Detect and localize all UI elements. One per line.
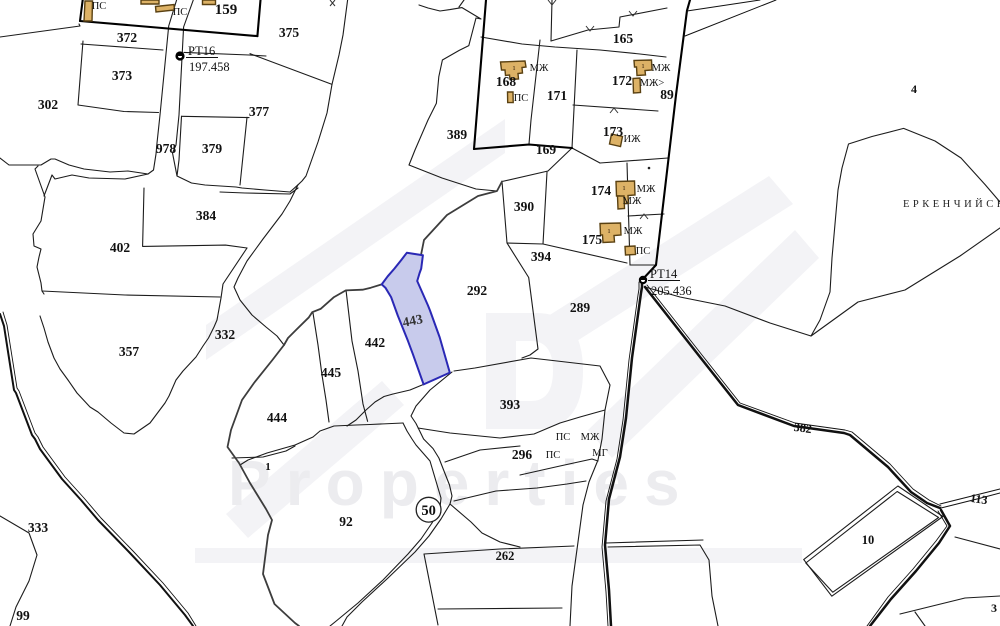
- svg-text:Properties: Properties: [228, 447, 695, 519]
- svg-text:333: 333: [28, 520, 49, 535]
- svg-text:ПС: ПС: [556, 432, 571, 443]
- svg-text:357: 357: [119, 344, 140, 359]
- svg-text:МГ: МГ: [592, 448, 607, 459]
- svg-text:165: 165: [613, 31, 634, 46]
- svg-text:99: 99: [16, 608, 30, 623]
- svg-text:373: 373: [112, 68, 133, 83]
- svg-text:РТ16: РТ16: [188, 44, 215, 58]
- svg-text:289: 289: [570, 300, 591, 315]
- svg-text:3: 3: [991, 601, 997, 615]
- svg-text:1: 1: [622, 185, 625, 192]
- svg-text:197.458: 197.458: [189, 60, 230, 74]
- svg-text:ПС: ПС: [636, 246, 651, 257]
- svg-text:МЖ>: МЖ>: [640, 78, 665, 89]
- svg-text:382: 382: [793, 420, 813, 436]
- svg-text:ПС: ПС: [546, 450, 561, 461]
- svg-text:372: 372: [117, 30, 138, 45]
- svg-text:332: 332: [215, 327, 236, 342]
- svg-text:168: 168: [496, 74, 517, 89]
- svg-text:МЖ: МЖ: [530, 63, 549, 74]
- svg-text:МЖ: МЖ: [623, 196, 642, 207]
- svg-text:ПС: ПС: [92, 1, 107, 12]
- svg-text:169: 169: [536, 142, 557, 157]
- svg-text:172: 172: [612, 73, 633, 88]
- svg-text:978: 978: [156, 141, 177, 156]
- svg-text:377: 377: [249, 104, 270, 119]
- svg-text:1: 1: [512, 65, 515, 72]
- svg-text:4: 4: [911, 82, 917, 96]
- svg-text:393: 393: [500, 397, 521, 412]
- svg-text:389: 389: [447, 127, 468, 142]
- svg-text:1: 1: [607, 228, 610, 235]
- svg-text:МЖ: МЖ: [637, 184, 656, 195]
- svg-text:296: 296: [512, 447, 533, 462]
- svg-text:262: 262: [496, 549, 515, 563]
- svg-text:92: 92: [339, 514, 353, 529]
- svg-text:402: 402: [110, 240, 131, 255]
- svg-text:174: 174: [591, 183, 612, 198]
- svg-text:ИЖ: ИЖ: [624, 134, 642, 145]
- svg-text:10: 10: [862, 533, 875, 547]
- svg-text:292: 292: [467, 283, 488, 298]
- svg-text:МЖ: МЖ: [624, 226, 643, 237]
- svg-text:384: 384: [196, 208, 217, 223]
- svg-text:375: 375: [279, 25, 300, 40]
- svg-text:113: 113: [969, 491, 988, 507]
- svg-text:445: 445: [321, 365, 342, 380]
- svg-text:ПС: ПС: [173, 7, 188, 18]
- svg-text:379: 379: [202, 141, 223, 156]
- svg-text:РТ14: РТ14: [650, 267, 678, 281]
- svg-text:МЖ: МЖ: [652, 63, 671, 74]
- svg-text:302: 302: [38, 97, 59, 112]
- svg-text:175: 175: [582, 232, 603, 247]
- svg-text:205.436: 205.436: [651, 284, 692, 298]
- svg-text:1: 1: [265, 461, 271, 473]
- svg-text:ПС: ПС: [514, 93, 529, 104]
- svg-text:394: 394: [531, 249, 552, 264]
- svg-text:444: 444: [267, 410, 288, 425]
- svg-text:159: 159: [215, 2, 238, 18]
- svg-text:50: 50: [421, 503, 436, 519]
- svg-text:1: 1: [641, 63, 644, 70]
- svg-text:ЕРКЕНЧИЙСК: ЕРКЕНЧИЙСК: [903, 198, 1000, 210]
- svg-text:171: 171: [547, 88, 568, 103]
- svg-text:МЖ: МЖ: [581, 432, 600, 443]
- svg-text:89: 89: [660, 87, 674, 102]
- svg-text:442: 442: [365, 335, 386, 350]
- svg-text:390: 390: [514, 199, 535, 214]
- svg-text:173: 173: [603, 124, 624, 139]
